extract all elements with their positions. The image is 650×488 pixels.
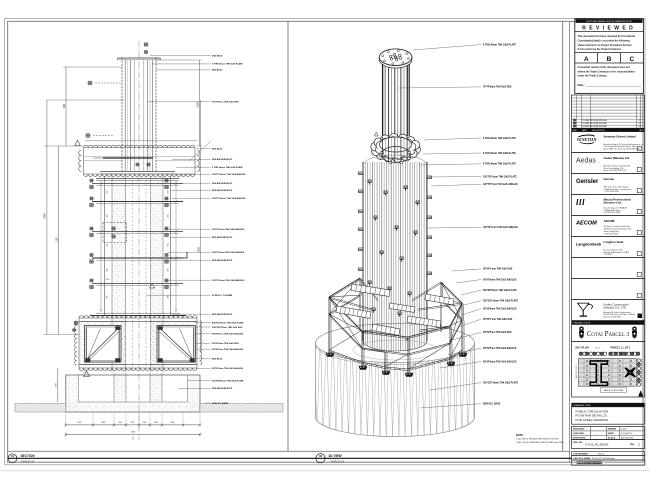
- svg-text:relieve the Trade Contractor o: relieve the Trade Contractor of its resp…: [578, 70, 636, 73]
- svg-text:M16 BOLT: M16 BOLT: [212, 56, 223, 58]
- svg-text:70*70*6mm THK G&S SHS: 70*70*6mm THK G&S SHS: [483, 87, 512, 89]
- svg-text:50*50*5 mm THK G&S SHS: 50*50*5 mm THK G&S SHS: [483, 269, 513, 271]
- svg-text:CHECKED: CHECKED: [573, 433, 584, 435]
- svg-text:FOR APPROVAL: FOR APPROVAL: [592, 119, 608, 122]
- svg-text:70*70*6mm THK G&S SHS: 70*70*6mm THK G&S SHS: [212, 102, 239, 104]
- svg-text:REFERENCE DWG FILE NAME: REFERENCE DWG FILE NAME: [577, 462, 605, 465]
- svg-text:AS SHOWN: AS SHOWN: [621, 436, 633, 439]
- svg-text:DRAWN: DRAWN: [608, 428, 617, 431]
- svg-text:C: C: [630, 56, 635, 63]
- svg-text:6 THK 90mm THK G&S PLATE: 6 THK 90mm THK G&S PLATE: [212, 63, 243, 66]
- svg-text:T 20 0828: T 20 0828: [604, 254, 612, 256]
- svg-text:status referred to in Projec: status referred to in Project Procedure …: [578, 44, 633, 47]
- svg-text:Gensler: Gensler: [576, 179, 599, 185]
- svg-text:M16 ANCHOR BOLT: M16 ANCHOR BOLT: [212, 313, 233, 316]
- svg-text:N.T.S: N.T.S: [595, 347, 601, 349]
- svg-text:Date :: Date :: [578, 83, 586, 87]
- svg-text:6 THK 90mm THK G&S PLATE: 6 THK 90mm THK G&S PLATE: [483, 152, 516, 155]
- svg-text:2946: 2946: [44, 213, 47, 219]
- svg-text:400*200*8mm THK G&S PLATE: 400*200*8mm THK G&S PLATE: [483, 289, 517, 292]
- svg-text:LangdonSeah: LangdonSeah: [576, 242, 602, 246]
- svg-text:Venetian Orient Limited: Venetian Orient Limited: [604, 134, 637, 138]
- svg-text:FOR APPROVAL: FOR APPROVAL: [592, 125, 608, 128]
- svg-text:02: 02: [319, 454, 323, 458]
- svg-text:Macau Tel: (853) 2833 1113: Macau Tel: (853) 2833 1113: [604, 170, 626, 172]
- svg-text:Services Ltd.: Services Ltd.: [604, 201, 622, 205]
- svg-text:T + 852 2598 9698: T + 852 2598 9698: [604, 191, 619, 193]
- svg-text:KEY PLAN: KEY PLAN: [576, 346, 589, 350]
- svg-text:3-YUS_PC_B1500: 3-YUS_PC_B1500: [585, 442, 609, 446]
- svg-text:120*70*10mm THK G&S ANGLES: 120*70*10mm THK G&S ANGLES: [212, 197, 246, 200]
- svg-text:B: B: [607, 56, 612, 63]
- svg-text:50*50*5mm THK G&S ANGLES: 50*50*5mm THK G&S ANGLES: [483, 360, 517, 363]
- svg-text:Langdon Seah: Langdon Seah: [604, 240, 624, 244]
- svg-text:6 THK 90mm THK G&S PLATE: 6 THK 90mm THK G&S PLATE: [483, 137, 516, 140]
- svg-text:CAD FILE NAME: CAD FILE NAME: [573, 457, 591, 460]
- svg-text:800: 800: [63, 103, 66, 108]
- svg-text:A: A: [584, 56, 589, 63]
- svg-text:31124_PC_B1500.dwg: 31124_PC_B1500.dwg: [592, 458, 615, 460]
- svg-text:120*70*7mm THK G&S ANGLES: 120*70*7mm THK G&S ANGLES: [483, 183, 518, 186]
- svg-text:M16 ANCHOR BOLT: M16 ANCHOR BOLT: [212, 259, 233, 262]
- svg-text:SCALE 1:5: SCALE 1:5: [21, 459, 34, 463]
- svg-text:SCALE: SCALE: [608, 436, 616, 439]
- svg-text:Ø350 R.C BASE: Ø350 R.C BASE: [212, 402, 229, 405]
- svg-text:M16 BOLT: M16 BOLT: [212, 359, 223, 361]
- svg-text:AECOM: AECOM: [575, 221, 597, 227]
- svg-text:M16 ANCHOR BOLT: M16 ANCHOR BOLT: [212, 387, 233, 390]
- svg-text:50*50*5mm THK G&S SHS: 50*50*5mm THK G&S SHS: [212, 343, 239, 345]
- svg-text:FOR STEEL DRAWING: FOR STEEL DRAWING: [576, 418, 609, 422]
- svg-text:1500: 1500: [196, 102, 199, 108]
- svg-text:3D VIEW: 3D VIEW: [329, 454, 342, 458]
- svg-text:50*50*5mm THK G&S SHS: 50*50*5mm THK G&S SHS: [483, 332, 512, 334]
- svg-text:6 THK 90mm THK G&S PLATE: 6 THK 90mm THK G&S PLATE: [212, 166, 243, 169]
- svg-text:PARCEL 3 SITE PLAN: PARCEL 3 SITE PLAN: [604, 389, 624, 392]
- svg-text:150*150*10mm THK G&S PLATE: 150*150*10mm THK G&S PLATE: [483, 300, 519, 303]
- svg-text:Aedas (Macau) Ltd.: Aedas (Macau) Ltd.: [604, 156, 631, 160]
- svg-text:M16 ANCHOR BOLT: M16 ANCHOR BOLT: [212, 158, 233, 161]
- svg-text:This document has been reviewe: This document has been reviewed by the r…: [578, 35, 636, 38]
- svg-text:M16 BOLT: M16 BOLT: [212, 70, 223, 72]
- svg-text:01: 01: [11, 454, 15, 458]
- svg-text:DESIGNED: DESIGNED: [573, 429, 585, 431]
- svg-text:DWG NO: DWG NO: [573, 442, 583, 444]
- svg-text:120*70*10mm THK G&S PLATE: 120*70*10mm THK G&S PLATE: [483, 175, 517, 178]
- svg-text:T +852 3922 9000: T +852 3922 9000: [604, 233, 619, 235]
- svg-text:Macau SAR, P.R. China Tel: (8: Macau SAR, P.R. China Tel: (853) 2882 88…: [604, 148, 640, 151]
- svg-text:M16 ANCHOR BOLT: M16 ANCHOR BOLT: [212, 236, 233, 239]
- svg-text:(Macau) CO. LTD.: (Macau) CO. LTD.: [604, 306, 628, 310]
- svg-text:PARCEL 1, LOT 1: PARCEL 1, LOT 1: [575, 365, 578, 379]
- svg-text:120*70*10mm THK G&S ANGLES: 120*70*10mm THK G&S ANGLES: [212, 173, 246, 176]
- svg-text:50*50*5mm THK G&S ANGLES: 50*50*5mm THK G&S ANGLES: [212, 367, 244, 370]
- svg-text:50*50*5mm THK G&S ANGLES: 50*50*5mm THK G&S ANGLES: [483, 278, 517, 281]
- svg-text:M16 BOLT: M16 BOLT: [212, 148, 223, 150]
- svg-text:Consultant(s)/(and) is accorde: Consultant(s)/(and) is accorded the foll…: [578, 39, 631, 42]
- svg-text:DATE: DATE: [608, 432, 614, 435]
- svg-text:SECTION: SECTION: [21, 454, 36, 458]
- svg-text:Ø350 R.C BASE: Ø350 R.C BASE: [483, 403, 501, 406]
- svg-text:120*70*6mm THK G&S ANGLES: 120*70*6mm THK G&S ANGLES: [212, 251, 245, 254]
- svg-text:120*70*7mm THK G&S ANGLES: 120*70*7mm THK G&S ANGLES: [483, 226, 518, 229]
- svg-text:REVIEWED: REVIEWED: [582, 25, 636, 31]
- svg-text:M16 ANCHOR BOLT: M16 ANCHOR BOLT: [212, 189, 233, 192]
- svg-text:Aedas: Aedas: [576, 157, 596, 164]
- svg-text:6 THK 90mm THK G&S PLATE: 6 THK 90mm THK G&S PLATE: [483, 163, 516, 166]
- svg-text:120*70*6mm THK G&S ANGLES: 120*70*6mm THK G&S ANGLES: [212, 279, 245, 282]
- svg-text:Consultant review of this docu: Consultant review of this document does …: [578, 66, 630, 69]
- svg-text:C: C: [638, 442, 640, 446]
- svg-text:1500: 1500: [197, 247, 200, 253]
- svg-text:PARCEL 1, LOT 2: PARCEL 1, LOT 2: [611, 347, 631, 350]
- svg-text:lll: lll: [576, 197, 585, 207]
- svg-text:AECOM: AECOM: [604, 219, 615, 223]
- svg-text:Macau Tel: 2875 1824: Macau Tel: 2875 1824: [604, 317, 622, 319]
- svg-text:50*50*6mm THK G&S ANGLES: 50*50*6mm THK G&S ANGLES: [483, 307, 517, 310]
- svg-text:6 THK 90mm THK G&S PLATE: 6 THK 90mm THK G&S PLATE: [483, 43, 516, 46]
- svg-text:150*150*10mm THK G&S SHS: 150*150*10mm THK G&S SHS: [212, 327, 243, 329]
- svg-text:REV: REV: [630, 444, 635, 446]
- svg-text:120*120*10mm THK G&S PLATE: 120*120*10mm THK G&S PLATE: [483, 381, 519, 384]
- svg-text:1150: 1150: [55, 237, 58, 243]
- svg-text:120*70*6mm THK G&S ANGLES: 120*70*6mm THK G&S ANGLES: [212, 228, 245, 231]
- svg-text:NOTE:: NOTE:: [516, 434, 524, 437]
- svg-text:Tel: (853) 2875 3088: Tel: (853) 2875 3088: [604, 212, 620, 214]
- svg-text:SCALE 1:5: SCALE 1:5: [331, 459, 344, 463]
- svg-text:50*50*5 mm THK G&S SHS: 50*50*5 mm THK G&S SHS: [483, 319, 513, 321]
- svg-text:APPROVED: APPROVED: [573, 436, 586, 439]
- svg-text:Ø 350 R.C COLUMN: Ø 350 R.C COLUMN: [212, 295, 233, 297]
- svg-text:FOR APPROVAL: FOR APPROVAL: [592, 122, 608, 125]
- svg-text:50*50*5mm THK G&S ANGLES: 50*50*5mm THK G&S ANGLES: [212, 348, 244, 351]
- svg-text:5.4 for action by the Trade Co: 5.4 for action by the Trade Contractor.: [578, 48, 622, 51]
- svg-text:14-JUN-15: 14-JUN-15: [621, 433, 632, 435]
- svg-text:LLHO: LLHO: [621, 429, 627, 431]
- svg-text:1. ALL BOLT SHOULD BE FIXING O: 1. ALL BOLT SHOULD BE FIXING ON SITE.: [516, 438, 560, 441]
- svg-text:under the Trade Contract.: under the Trade Contract.: [578, 75, 608, 78]
- svg-text:Gensler: Gensler: [604, 177, 616, 181]
- svg-text:6*150*600mm THK G&S PLATE: 6*150*600mm THK G&S PLATE: [212, 380, 244, 383]
- svg-text:M16 ANCHOR BOLT: M16 ANCHOR BOLT: [212, 182, 233, 185]
- svg-text:VENETIAN: VENETIAN: [577, 138, 597, 142]
- svg-text:400*200*8mm THK G&S PLATE: 400*200*8mm THK G&S PLATE: [212, 322, 244, 325]
- svg-text:50*50*5mm THK G&S ANGLES: 50*50*5mm THK G&S ANGLES: [483, 347, 517, 350]
- svg-text:2. ALL FILLET WELDED SHOULD BE: 2. ALL FILLET WELDED SHOULD BE 3mm THK.: [516, 441, 564, 444]
- svg-text:50*50*5mm THK G&S ANGLES: 50*50*5mm THK G&S ANGLES: [212, 333, 244, 336]
